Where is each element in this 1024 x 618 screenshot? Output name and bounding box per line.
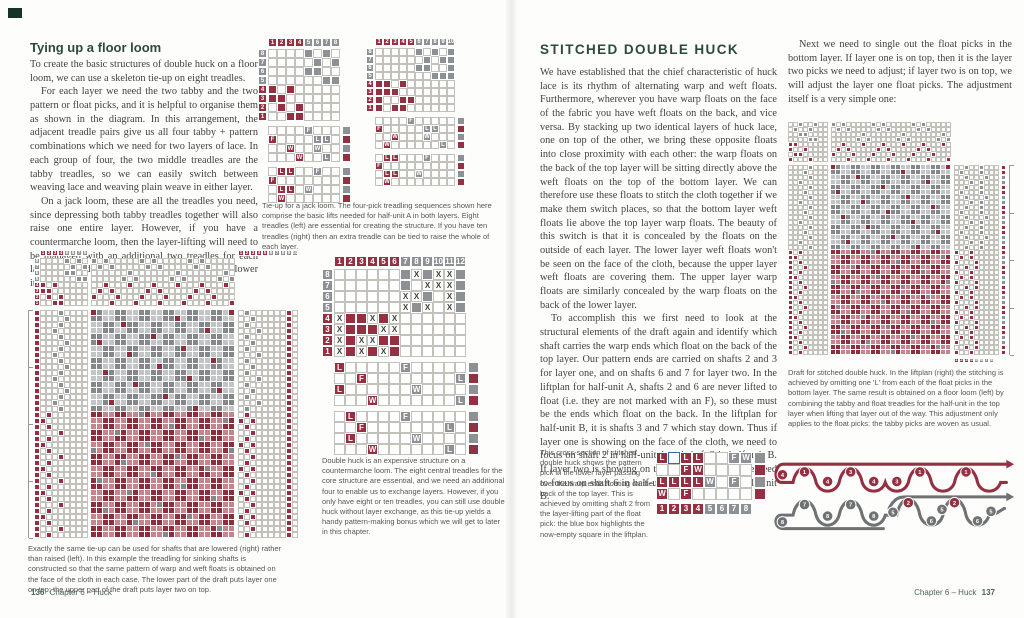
woven-cell <box>901 290 905 294</box>
grid-cell <box>268 144 277 153</box>
grid-cell <box>668 464 680 476</box>
number-cell: 8 <box>331 38 340 47</box>
woven-cell <box>936 305 940 309</box>
grid-cell <box>375 141 383 149</box>
woven-cell <box>876 265 880 269</box>
woven-cell <box>831 210 835 214</box>
woven-cell <box>187 376 192 381</box>
woven-cell <box>157 328 162 333</box>
woven-cell <box>157 316 162 321</box>
woven-cell <box>145 388 150 393</box>
woven-cell <box>916 335 920 339</box>
woven-cell <box>187 490 192 495</box>
woven-cell <box>866 250 870 254</box>
grid-cell <box>407 170 415 178</box>
woven-cell <box>856 215 860 219</box>
woven-cell <box>181 460 186 465</box>
woven-cell <box>831 190 835 194</box>
grid-cell <box>331 112 340 121</box>
woven-cell <box>211 394 216 399</box>
woven-cell <box>163 466 168 471</box>
woven-cell <box>127 484 132 489</box>
woven-cell <box>871 245 875 249</box>
woven-cell <box>97 418 102 423</box>
grid-cell <box>704 452 716 464</box>
woven-cell <box>866 175 870 179</box>
woven-cell <box>841 340 845 344</box>
woven-cell <box>831 185 835 189</box>
woven-cell <box>229 490 234 495</box>
woven-cell <box>831 250 835 254</box>
woven-cell <box>91 394 96 399</box>
woven-cell <box>169 430 174 435</box>
woven-cell <box>181 388 186 393</box>
woven-cell <box>871 305 875 309</box>
woven-cell <box>163 310 168 315</box>
woven-cell <box>896 265 900 269</box>
grid-cell <box>422 433 433 444</box>
woven-cell <box>941 205 945 209</box>
woven-cell <box>223 316 228 321</box>
woven-cell <box>886 280 890 284</box>
woven-cell <box>871 350 875 354</box>
woven-cell <box>891 325 895 329</box>
woven-cell <box>846 245 850 249</box>
woven-cell <box>931 325 935 329</box>
grid-cell <box>286 67 295 76</box>
treadle-number-row: 12345678910 <box>238 250 298 256</box>
woven-cell <box>836 275 840 279</box>
grid-cell <box>313 176 322 185</box>
woven-cell <box>946 285 950 289</box>
woven-cell <box>211 472 216 477</box>
grid-cell <box>375 133 383 141</box>
woven-cell <box>866 240 870 244</box>
woven-cell <box>931 340 935 344</box>
woven-cell <box>906 275 910 279</box>
woven-cell <box>936 190 940 194</box>
woven-cell <box>851 210 855 214</box>
woven-cell <box>871 310 875 314</box>
woven-cell <box>199 502 204 507</box>
woven-cell <box>851 305 855 309</box>
woven-cell <box>941 280 945 284</box>
woven-cell <box>121 394 126 399</box>
number-cell <box>342 185 351 194</box>
woven-cell <box>91 406 96 411</box>
woven-cell <box>157 340 162 345</box>
grid-cell <box>383 125 391 133</box>
woven-cell <box>91 448 96 453</box>
woven-cell <box>886 170 890 174</box>
woven-cell <box>115 430 120 435</box>
woven-cell <box>841 250 845 254</box>
woven-cell <box>169 454 174 459</box>
woven-cell <box>217 400 222 405</box>
woven-cell <box>921 245 925 249</box>
woven-cell <box>911 220 915 224</box>
woven-cell <box>103 442 108 447</box>
woven-cell <box>157 466 162 471</box>
caption-stitched-draft: Draft for stitched double huck. In the l… <box>788 368 1016 429</box>
woven-cell <box>836 265 840 269</box>
grid-cell <box>692 488 704 500</box>
woven-cell <box>831 335 835 339</box>
woven-cell <box>103 388 108 393</box>
woven-cell <box>931 275 935 279</box>
woven-cell <box>941 220 945 224</box>
woven-cell <box>223 412 228 417</box>
woven-cell <box>115 328 120 333</box>
woven-cell <box>896 310 900 314</box>
number-cell: 5 <box>378 256 389 267</box>
woven-cell <box>931 265 935 269</box>
woven-cell <box>217 436 222 441</box>
woven-cell <box>157 478 162 483</box>
woven-cell <box>926 215 930 219</box>
woven-cell <box>836 260 840 264</box>
woven-cell <box>133 418 138 423</box>
grid-cell <box>375 170 383 178</box>
woven-cell <box>169 334 174 339</box>
woven-cell <box>115 382 120 387</box>
grid-cell <box>378 411 389 422</box>
woven-cell <box>199 382 204 387</box>
grid-cell <box>389 335 400 346</box>
woven-cell <box>926 200 930 204</box>
grid-cell <box>378 362 389 373</box>
woven-cell <box>941 170 945 174</box>
woven-cell <box>145 430 150 435</box>
woven-cell <box>139 496 144 501</box>
woven-cell <box>891 235 895 239</box>
woven-cell <box>163 394 168 399</box>
woven-cell <box>841 305 845 309</box>
woven-cell <box>193 376 198 381</box>
woven-cell <box>193 364 198 369</box>
grid-cell <box>455 411 466 422</box>
grid-cell: X <box>400 302 411 313</box>
woven-cell <box>181 424 186 429</box>
grid-cell <box>423 170 431 178</box>
woven-cell <box>886 240 890 244</box>
grid-cell <box>334 433 345 444</box>
woven-cell <box>881 315 885 319</box>
woven-cell <box>103 358 108 363</box>
woven-cell <box>876 255 880 259</box>
grid-cell: X <box>444 280 455 291</box>
woven-cell <box>181 328 186 333</box>
woven-cell <box>217 490 222 495</box>
woven-cell <box>223 460 228 465</box>
woven-cell <box>861 215 865 219</box>
woven-cell <box>896 315 900 319</box>
woven-cell <box>169 466 174 471</box>
woven-cell <box>876 320 880 324</box>
grid-cell <box>356 384 367 395</box>
grid-cell <box>313 153 322 162</box>
woven-cell <box>846 315 850 319</box>
woven-cell <box>876 260 880 264</box>
grid-cell <box>322 49 331 58</box>
woven-cell <box>911 195 915 199</box>
woven-cell <box>127 454 132 459</box>
number-cell: 3 <box>322 324 333 335</box>
woven-cell <box>103 394 108 399</box>
woven-cell <box>846 270 850 274</box>
woven-cell <box>861 350 865 354</box>
woven-cell <box>193 412 198 417</box>
woven-cell <box>946 335 950 339</box>
treadling-grid <box>788 165 828 355</box>
woven-cell <box>139 508 144 513</box>
woven-cell <box>836 175 840 179</box>
woven-cell <box>946 200 950 204</box>
woven-cell <box>831 240 835 244</box>
woven-cell <box>187 424 192 429</box>
grid-cell <box>391 96 399 104</box>
grid-cell <box>716 464 728 476</box>
woven-cell <box>199 412 204 417</box>
woven-cell <box>926 205 930 209</box>
woven-cell <box>205 484 210 489</box>
woven-cell <box>921 305 925 309</box>
woven-cell <box>91 352 96 357</box>
woven-cell <box>91 412 96 417</box>
woven-cell <box>931 320 935 324</box>
woven-cell <box>205 418 210 423</box>
woven-cell <box>139 346 144 351</box>
woven-cell <box>921 230 925 234</box>
grid-cell <box>367 422 378 433</box>
woven-cell <box>866 315 870 319</box>
grid-cell <box>82 300 88 306</box>
paragraph: For each layer we need the two tabby and… <box>30 85 258 195</box>
woven-cell <box>941 350 945 354</box>
woven-cell <box>223 382 228 387</box>
woven-cell <box>109 514 114 519</box>
woven-cell <box>836 300 840 304</box>
woven-cell <box>205 502 210 507</box>
woven-cell <box>103 412 108 417</box>
grid-cell <box>407 80 415 88</box>
grid-cell <box>415 178 423 186</box>
woven-cell <box>906 320 910 324</box>
woven-cell <box>906 315 910 319</box>
woven-cell <box>169 412 174 417</box>
grid-cell <box>295 85 304 94</box>
woven-cell <box>151 490 156 495</box>
woven-cell <box>121 430 126 435</box>
woven-cell <box>199 400 204 405</box>
grid-cell <box>728 464 740 476</box>
woven-cell <box>936 230 940 234</box>
grid-cell <box>447 80 455 88</box>
woven-cell <box>193 418 198 423</box>
woven-cell <box>901 165 905 169</box>
woven-cell <box>841 280 845 284</box>
grid-cell: F <box>375 162 383 170</box>
woven-cell <box>121 424 126 429</box>
number-cell: 4 <box>692 503 704 515</box>
woven-cell <box>871 230 875 234</box>
woven-cell <box>139 436 144 441</box>
liftplan-grid-b: LLFFLLWW <box>375 154 455 186</box>
grid-cell: X <box>411 269 422 280</box>
woven-cell <box>139 394 144 399</box>
woven-cell <box>229 370 234 375</box>
pick-color-column <box>457 154 465 186</box>
woven-cell <box>205 496 210 501</box>
woven-cell <box>886 350 890 354</box>
woven-cell <box>151 322 156 327</box>
woven-cell <box>876 245 880 249</box>
woven-cell <box>193 466 198 471</box>
grid-cell <box>356 269 367 280</box>
woven-cell <box>163 316 168 321</box>
woven-cell <box>127 310 132 315</box>
woven-cell <box>211 478 216 483</box>
grid-cell <box>423 64 431 72</box>
woven-cell <box>856 225 860 229</box>
grid-cell <box>331 76 340 85</box>
woven-cell <box>906 350 910 354</box>
woven-cell <box>866 320 870 324</box>
woven-cell <box>891 335 895 339</box>
woven-cell <box>103 532 108 537</box>
grid-cell <box>433 373 444 384</box>
grid-cell <box>946 157 951 162</box>
number-cell: 4 <box>258 85 267 94</box>
woven-cell <box>145 364 150 369</box>
woven-cell <box>97 358 102 363</box>
grid-cell <box>295 103 304 112</box>
woven-cell <box>145 514 150 519</box>
woven-cell <box>151 502 156 507</box>
woven-cell <box>163 400 168 405</box>
woven-cell <box>881 235 885 239</box>
number-cell <box>754 476 766 488</box>
woven-cell <box>115 532 120 537</box>
woven-cell <box>175 478 180 483</box>
woven-cell <box>916 200 920 204</box>
arrowhead-icon <box>1006 460 1014 469</box>
woven-cell <box>856 280 860 284</box>
woven-cell <box>97 310 102 315</box>
woven-cell <box>911 255 915 259</box>
woven-cell <box>856 180 860 184</box>
grid-cell: F <box>313 167 322 176</box>
woven-cell <box>886 230 890 234</box>
woven-cell <box>115 526 120 531</box>
woven-cell <box>856 340 860 344</box>
grid-cell <box>399 56 407 64</box>
woven-cell <box>886 295 890 299</box>
woven-cell <box>916 180 920 184</box>
woven-cell <box>906 255 910 259</box>
number-cell: 3 <box>356 256 367 267</box>
woven-cell <box>163 532 168 537</box>
grid-cell <box>391 178 399 186</box>
grid-cell <box>286 76 295 85</box>
woven-cell <box>211 514 216 519</box>
woven-cell <box>91 478 96 483</box>
drawdown <box>831 165 950 354</box>
woven-cell <box>139 340 144 345</box>
woven-cell <box>97 322 102 327</box>
woven-cell <box>205 532 210 537</box>
woven-cell <box>163 520 168 525</box>
woven-cell <box>836 220 840 224</box>
woven-cell <box>946 240 950 244</box>
woven-cell <box>223 406 228 411</box>
woven-cell <box>217 352 222 357</box>
woven-cell <box>181 340 186 345</box>
woven-cell <box>229 478 234 483</box>
grid-cell <box>286 126 295 135</box>
grid-cell <box>455 291 466 302</box>
woven-cell <box>901 260 905 264</box>
woven-cell <box>199 490 204 495</box>
woven-cell <box>926 320 930 324</box>
woven-cell <box>133 376 138 381</box>
woven-cell <box>871 340 875 344</box>
woven-cell <box>193 478 198 483</box>
woven-cell <box>145 460 150 465</box>
woven-cell <box>886 175 890 179</box>
woven-cell <box>861 260 865 264</box>
grid-cell <box>292 532 298 538</box>
woven-cell <box>169 532 174 537</box>
woven-cell <box>871 195 875 199</box>
woven-cell <box>169 490 174 495</box>
woven-cell <box>205 394 210 399</box>
woven-cell <box>205 370 210 375</box>
woven-cell <box>151 448 156 453</box>
woven-cell <box>109 478 114 483</box>
woven-cell <box>211 430 216 435</box>
woven-cell <box>901 270 905 274</box>
woven-cell <box>127 406 132 411</box>
woven-cell <box>926 295 930 299</box>
woven-cell <box>91 316 96 321</box>
woven-cell <box>931 335 935 339</box>
grid-cell <box>391 125 399 133</box>
woven-cell <box>175 460 180 465</box>
grid-cell <box>823 350 828 355</box>
woven-cell <box>109 322 114 327</box>
grid-cell <box>322 103 331 112</box>
grid-cell <box>383 133 391 141</box>
woven-cell <box>931 220 935 224</box>
stitched-liftplan: LLLFWFWLLLLWFWF <box>656 452 752 500</box>
woven-cell <box>181 418 186 423</box>
woven-cell <box>931 295 935 299</box>
woven-cell <box>133 310 138 315</box>
grid-cell <box>444 395 455 406</box>
grid-cell <box>411 280 422 291</box>
woven-cell <box>866 350 870 354</box>
tieup-grid: XXXXXXXXXXXXXXXXXXXXXXXX <box>334 269 466 357</box>
woven-cell <box>199 364 204 369</box>
woven-cell <box>921 225 925 229</box>
grid-cell <box>331 185 340 194</box>
woven-cell <box>926 240 930 244</box>
woven-cell <box>205 310 210 315</box>
woven-cell <box>896 250 900 254</box>
woven-cell <box>109 496 114 501</box>
grid-cell: X <box>378 346 389 357</box>
